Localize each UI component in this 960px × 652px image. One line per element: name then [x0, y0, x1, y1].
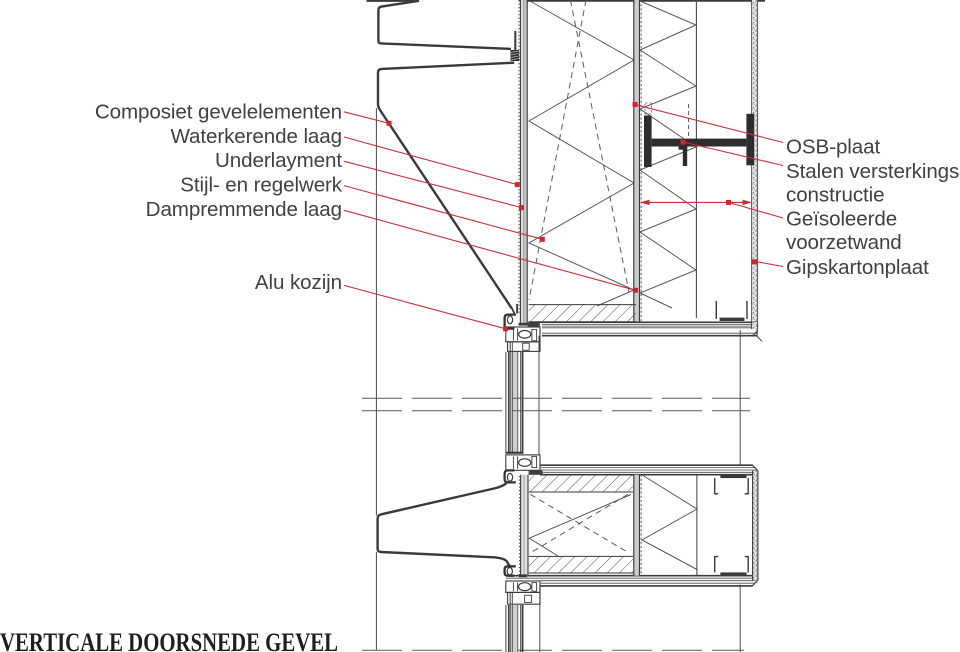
svg-text:constructie: constructie [786, 184, 884, 207]
svg-text:Stijl- en regelwerk: Stijl- en regelwerk [180, 174, 343, 197]
svg-text:Waterkerende laag: Waterkerende laag [170, 125, 342, 148]
svg-text:Composiet gevelelementen: Composiet gevelelementen [95, 100, 342, 123]
svg-text:voorzetwand: voorzetwand [786, 231, 902, 254]
svg-text:Underlayment: Underlayment [215, 149, 342, 172]
svg-text:Alu kozijn: Alu kozijn [255, 271, 342, 294]
svg-text:Dampremmende laag: Dampremmende laag [146, 198, 342, 221]
svg-text:Stalen versterkings-: Stalen versterkings- [786, 160, 960, 183]
svg-text:Geïsoleerde: Geïsoleerde [786, 207, 897, 230]
svg-text:VERTICALE DOORSNEDE GEVEL: VERTICALE DOORSNEDE GEVEL [0, 628, 338, 652]
svg-text:OSB-plaat: OSB-plaat [786, 136, 880, 159]
svg-text:Gipskartonplaat: Gipskartonplaat [786, 256, 929, 279]
